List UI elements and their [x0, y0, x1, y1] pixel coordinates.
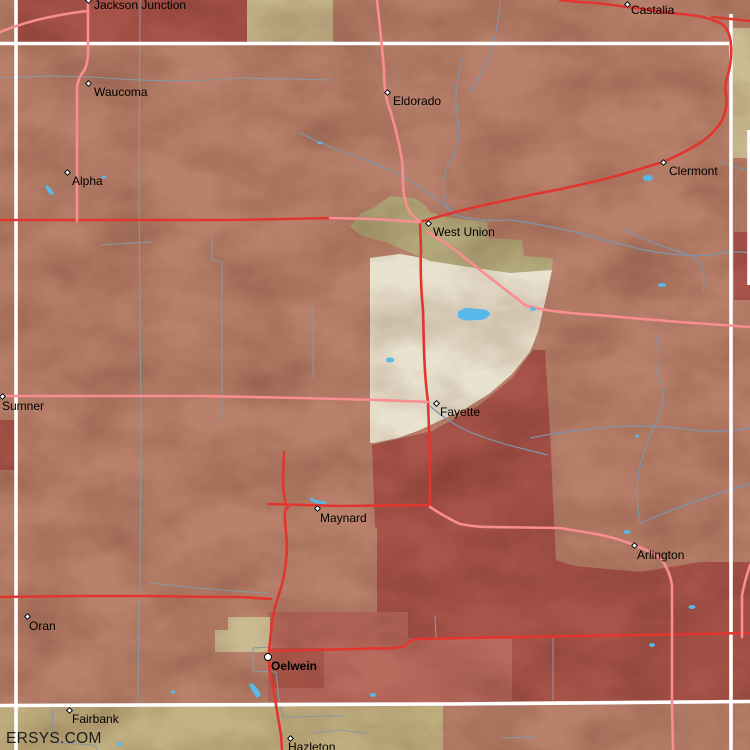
town-label-arlington: Arlington — [637, 549, 684, 561]
town-marker-waucoma — [84, 79, 91, 86]
town-marker-clermont — [659, 158, 666, 165]
town-label-fairbank: Fairbank — [72, 713, 119, 725]
town-marker-alpha — [63, 168, 70, 175]
town-label-sumner: Sumner — [2, 400, 44, 412]
town-label-jackson-junction: Jackson Junction — [94, 0, 186, 11]
town-label-fayette: Fayette — [440, 406, 480, 418]
site-watermark: ERSYS.COM — [6, 730, 102, 748]
map-canvas: Jackson JunctionCastaliaWaucomaEldoradoA… — [0, 0, 750, 750]
town-label-clermont: Clermont — [669, 165, 718, 177]
town-label-alpha: Alpha — [72, 175, 103, 187]
town-marker-jackson-junction — [84, 0, 91, 4]
town-label-waucoma: Waucoma — [94, 86, 148, 98]
town-label-maynard: Maynard — [320, 512, 367, 524]
town-label-eldorado: Eldorado — [393, 95, 441, 107]
town-label-oelwein: Oelwein — [271, 660, 317, 672]
town-marker-castalia — [623, 0, 630, 7]
town-label-hazleton: Hazleton — [288, 741, 335, 750]
town-layer: Jackson JunctionCastaliaWaucomaEldoradoA… — [0, 0, 750, 750]
town-label-castalia: Castalia — [631, 4, 674, 16]
town-marker-fayette — [432, 399, 439, 406]
town-label-oran: Oran — [29, 620, 56, 632]
town-label-west-union: West Union — [433, 226, 495, 238]
town-marker-west-union — [424, 219, 431, 226]
town-marker-eldorado — [383, 88, 390, 95]
